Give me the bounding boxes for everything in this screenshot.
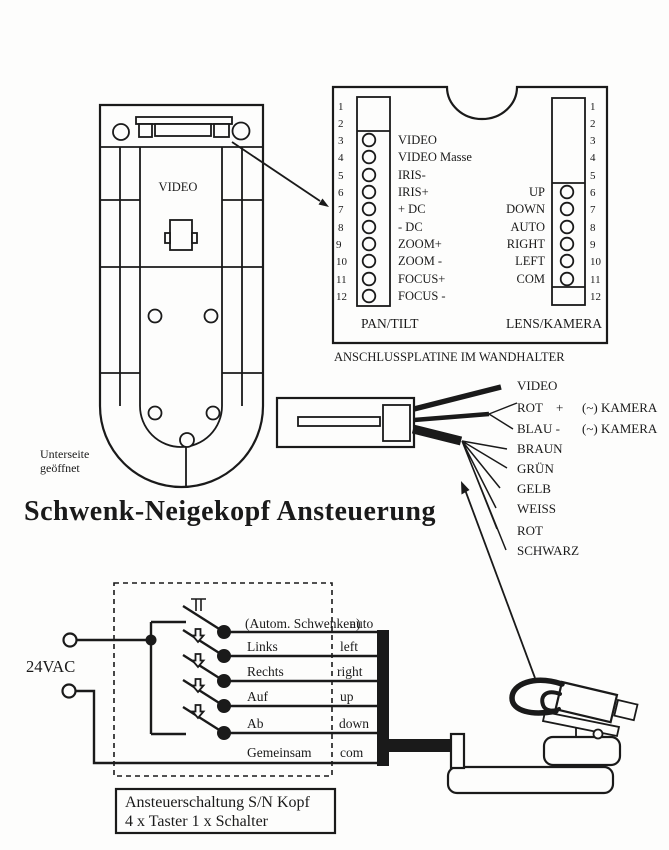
svg-text:AUTO: AUTO	[511, 220, 546, 234]
device-dome-hole-center	[180, 433, 194, 447]
latching-switch-icon	[191, 599, 206, 611]
svg-text:IRIS-: IRIS-	[398, 168, 426, 182]
arrow-line	[232, 142, 320, 201]
wire-label-rot2: ROT	[517, 523, 543, 538]
svg-text:10: 10	[590, 256, 602, 268]
svg-text:DOWN: DOWN	[506, 202, 545, 216]
device-hole-right	[205, 310, 218, 323]
svg-text:8: 8	[338, 222, 344, 234]
switch-contact-dot	[217, 699, 231, 713]
camera-head-drawing	[448, 680, 638, 793]
power-wire	[414, 414, 489, 420]
pushbutton-arrow-icon	[193, 654, 204, 667]
row-label-en: down	[339, 716, 369, 731]
device-top-connector-bar	[136, 117, 232, 124]
wire-label-weiss: WEISS	[517, 501, 556, 516]
device-dome-hole-right	[207, 407, 220, 420]
device-screw-hole-right	[233, 123, 250, 140]
device-top-connector-tab-left	[139, 124, 152, 137]
pushbutton-arrow-icon	[193, 705, 204, 718]
board-caption: ANSCHLUSSPLATINE IM WANDHALTER	[334, 350, 565, 364]
device-caption-line1: Unterseite	[40, 447, 89, 461]
svg-text:8: 8	[590, 222, 596, 234]
caption-line1: Ansteuerschaltung S/N Kopf	[125, 794, 311, 811]
wire-note-kamera-2: (~) KAMERA	[582, 421, 658, 436]
switch-contact-dot	[217, 674, 231, 688]
wire-note-kamera-1: (~) KAMERA	[582, 400, 658, 415]
switch-contact-dot	[217, 625, 231, 639]
head-base-lower	[448, 767, 613, 793]
svg-text:12: 12	[336, 291, 347, 303]
device-top-connector-socket	[155, 124, 211, 136]
wire-label-rot-sign: +	[556, 400, 563, 415]
cable-bundle-bar	[377, 630, 389, 766]
svg-text:FOCUS+: FOCUS+	[398, 272, 445, 286]
pushbutton-arrow-icon	[193, 629, 204, 642]
power-wire-fork	[489, 403, 517, 429]
device-hole-left	[149, 310, 162, 323]
svg-text:ZOOM -: ZOOM -	[398, 254, 442, 268]
svg-text:RIGHT: RIGHT	[507, 237, 546, 251]
wire-label-schwarz: SCHWARZ	[517, 543, 579, 558]
supply-terminal-top	[64, 634, 77, 647]
head-base-upper	[544, 737, 620, 765]
wire-label-rot: ROT	[517, 400, 543, 415]
bnc-connector-icon	[170, 220, 192, 250]
thick-cable-to-head	[389, 739, 450, 752]
svg-text:6: 6	[338, 187, 344, 199]
tilt-pivot	[594, 730, 603, 739]
svg-text:11: 11	[590, 274, 601, 286]
circuit-caption-box: Ansteuerschaltung S/N Kopf 4 x Taster 1 …	[116, 789, 335, 833]
svg-text:ZOOM+: ZOOM+	[398, 237, 442, 251]
svg-text:VIDEO: VIDEO	[398, 133, 437, 147]
row-label-de: Links	[247, 639, 278, 654]
device-caption-line2: geöffnet	[40, 461, 80, 475]
row-label-en: com	[340, 745, 364, 760]
row-label-de: Gemeinsam	[247, 745, 312, 760]
control-cable-fan	[462, 441, 507, 550]
device-outline	[100, 105, 263, 487]
scanned-wiring-diagram-page: VIDEO Unterseite geöffnet 1	[0, 0, 669, 850]
circuit-row-labels: (Autom. Schwenken) auto Links left Recht…	[245, 616, 373, 760]
svg-text:5: 5	[590, 170, 596, 182]
device-video-label: VIDEO	[159, 180, 198, 194]
wire-label-blau: BLAU -	[517, 421, 560, 436]
svg-text:7: 7	[590, 204, 596, 216]
wire-label-gelb: GELB	[517, 481, 551, 496]
svg-text:4: 4	[590, 152, 596, 164]
svg-text:COM: COM	[517, 272, 545, 286]
svg-text:6: 6	[590, 187, 596, 199]
svg-text:3: 3	[590, 135, 596, 147]
pan-tilt-pin-numbers: 1 2 3 4 5 6 7 8 9 10 11 12	[336, 101, 348, 303]
lens-kamera-pin-numbers: 1 2 3 4 5 6 7 8 9 10 11 12	[590, 101, 602, 303]
svg-text:+ DC: + DC	[398, 202, 426, 216]
bnc-tab-right	[192, 233, 197, 243]
caption-line2: 4 x Taster 1 x Schalter	[125, 813, 269, 830]
svg-text:12: 12	[590, 291, 601, 303]
camera-cable-loop	[512, 680, 562, 713]
svg-text:5: 5	[338, 170, 344, 182]
connector-board-drawing: 1 2 3 4 5 6 7 8 9 10 11 12 VIDEO VIDEO M…	[333, 87, 607, 343]
video-wire	[414, 387, 501, 409]
row-label-de: Rechts	[247, 664, 284, 679]
wall-connector-slot	[298, 417, 380, 426]
wire-label-braun: BRAUN	[517, 441, 563, 456]
row-label-en: auto	[350, 616, 373, 631]
wire-label-video: VIDEO	[517, 378, 557, 393]
svg-text:3: 3	[338, 135, 344, 147]
svg-text:1: 1	[338, 101, 344, 113]
page-title: Schwenk-Neigekopf Ansteuerung	[24, 496, 436, 527]
pan-tilt-title: PAN/TILT	[361, 316, 419, 331]
row-label-de: Auf	[247, 689, 268, 704]
lens-kamera-pin-labels: UP DOWN AUTO RIGHT LEFT COM	[506, 185, 545, 286]
wire-label-gruen: GRÜN	[517, 461, 554, 476]
svg-text:LEFT: LEFT	[515, 254, 545, 268]
device-screw-hole-left	[113, 124, 129, 140]
row-label-en: up	[340, 689, 354, 704]
switch-contact-dot	[217, 649, 231, 663]
supply-label: 24VAC	[26, 657, 75, 676]
svg-text:FOCUS -: FOCUS -	[398, 289, 446, 303]
pan-tilt-pin-labels: VIDEO VIDEO Masse IRIS- IRIS+ + DC - DC …	[398, 133, 472, 303]
row-label-en: right	[337, 664, 363, 679]
wall-connector-latch	[383, 405, 410, 441]
pointer-arrow-device-to-board	[232, 142, 329, 207]
control-cable	[413, 429, 461, 441]
svg-text:VIDEO Masse: VIDEO Masse	[398, 150, 472, 164]
switch-lever	[183, 606, 224, 632]
switch-contact-dot	[217, 726, 231, 740]
svg-text:7: 7	[338, 204, 344, 216]
wire-labels: VIDEO ROT + (~) KAMERA BLAU - (~) KAMERA…	[517, 378, 658, 558]
row-label-de: Ab	[247, 716, 264, 731]
svg-text:9: 9	[336, 239, 342, 251]
svg-text:IRIS+: IRIS+	[398, 185, 429, 199]
supply-terminal-bottom	[63, 685, 76, 698]
device-underside-drawing: VIDEO	[100, 105, 263, 487]
device-dome-hole-left	[149, 407, 162, 420]
row-label-en: left	[340, 639, 358, 654]
bnc-tab-left	[165, 233, 170, 243]
device-top-connector-tab-right	[214, 124, 229, 137]
pushbutton-arrow-icon	[193, 679, 204, 692]
svg-text:9: 9	[590, 239, 596, 251]
camera-lens	[614, 700, 637, 720]
svg-text:11: 11	[336, 274, 347, 286]
control-circuit-drawing: 24VAC	[26, 583, 450, 776]
pan-tilt-wiring-diagram: VIDEO Unterseite geöffnet 1	[0, 0, 669, 850]
arrow-head-icon	[319, 199, 330, 208]
lens-kamera-title: LENS/KAMERA	[506, 316, 602, 331]
svg-text:4: 4	[338, 152, 344, 164]
cable-entry-post	[451, 734, 464, 768]
svg-text:2: 2	[338, 118, 344, 130]
svg-text:- DC: - DC	[398, 220, 423, 234]
row-label-de: (Autom. Schwenken)	[245, 616, 360, 631]
svg-text:10: 10	[336, 256, 348, 268]
svg-text:1: 1	[590, 101, 596, 113]
svg-text:UP: UP	[529, 185, 545, 199]
svg-text:2: 2	[590, 118, 596, 130]
